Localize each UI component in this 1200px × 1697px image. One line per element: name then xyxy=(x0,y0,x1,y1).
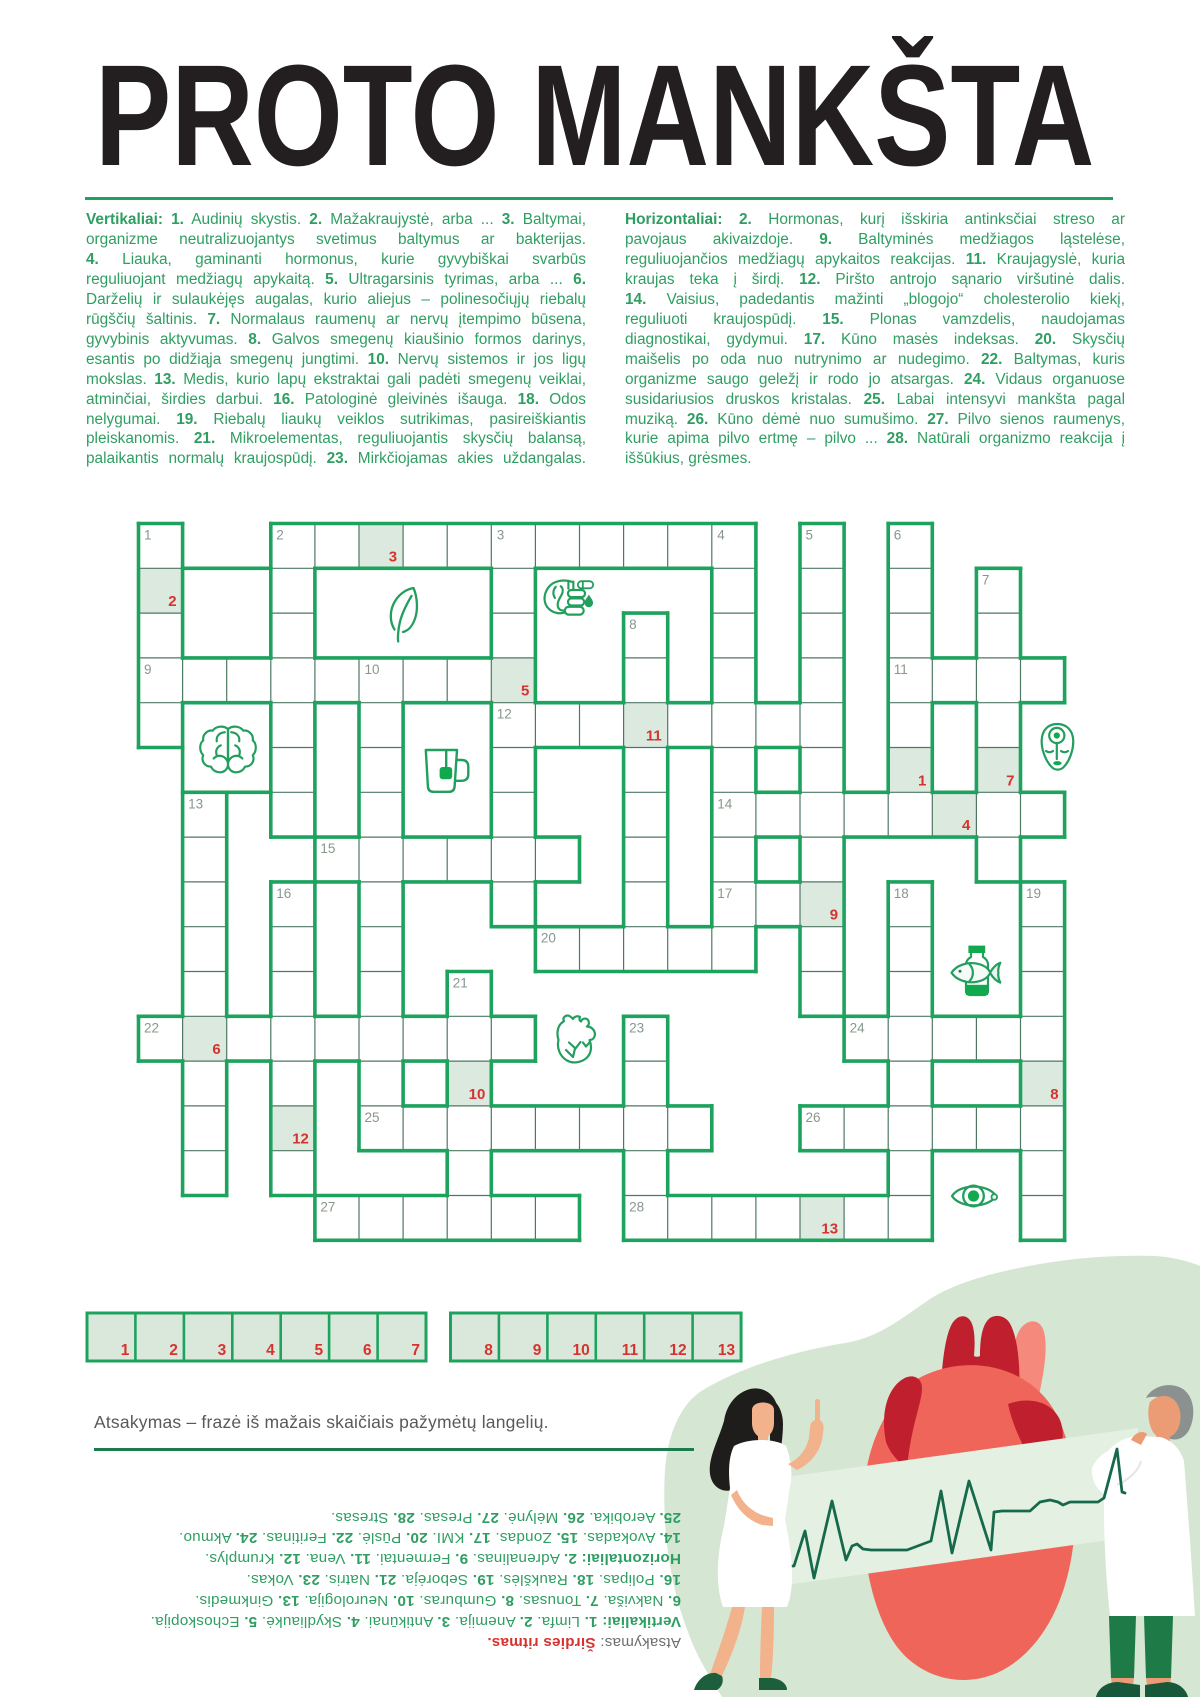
svg-text:6: 6 xyxy=(212,1041,220,1058)
svg-text:27: 27 xyxy=(320,1200,335,1215)
svg-text:5: 5 xyxy=(521,683,529,700)
svg-text:2: 2 xyxy=(169,1342,178,1359)
svg-text:15: 15 xyxy=(320,841,335,856)
svg-text:26: 26 xyxy=(806,1110,821,1125)
svg-text:10: 10 xyxy=(469,1086,486,1103)
svg-text:10: 10 xyxy=(365,662,380,677)
svg-text:12: 12 xyxy=(669,1342,686,1359)
svg-text:11: 11 xyxy=(622,1342,639,1359)
svg-text:7: 7 xyxy=(1006,772,1014,789)
svg-text:14: 14 xyxy=(717,796,733,811)
svg-text:7: 7 xyxy=(411,1342,420,1359)
svg-text:21: 21 xyxy=(453,976,468,991)
svg-text:8: 8 xyxy=(1050,1086,1058,1103)
svg-text:6: 6 xyxy=(363,1342,372,1359)
svg-text:11: 11 xyxy=(894,662,908,677)
svg-text:4: 4 xyxy=(717,528,725,543)
svg-text:24: 24 xyxy=(850,1020,866,1035)
svg-text:2: 2 xyxy=(168,593,176,610)
svg-text:11: 11 xyxy=(646,728,662,745)
svg-text:9: 9 xyxy=(533,1342,542,1359)
svg-text:6: 6 xyxy=(894,528,902,543)
svg-text:2: 2 xyxy=(276,528,284,543)
svg-text:4: 4 xyxy=(962,817,971,834)
svg-text:8: 8 xyxy=(484,1342,493,1359)
svg-text:8: 8 xyxy=(629,617,637,632)
svg-text:28: 28 xyxy=(629,1200,644,1215)
svg-text:17: 17 xyxy=(717,886,732,901)
svg-text:3: 3 xyxy=(389,548,397,565)
svg-text:23: 23 xyxy=(629,1020,644,1035)
svg-text:4: 4 xyxy=(266,1342,275,1359)
svg-text:20: 20 xyxy=(541,931,556,946)
svg-text:22: 22 xyxy=(144,1020,159,1035)
svg-text:13: 13 xyxy=(821,1220,838,1237)
svg-text:7: 7 xyxy=(982,572,990,587)
svg-text:12: 12 xyxy=(292,1131,309,1148)
svg-text:25: 25 xyxy=(365,1110,380,1125)
svg-text:5: 5 xyxy=(314,1342,323,1359)
svg-text:1: 1 xyxy=(121,1342,130,1359)
svg-text:3: 3 xyxy=(218,1342,227,1359)
svg-text:18: 18 xyxy=(894,886,909,901)
svg-text:10: 10 xyxy=(573,1342,590,1359)
svg-text:12: 12 xyxy=(497,707,512,722)
svg-text:9: 9 xyxy=(144,662,152,677)
svg-text:9: 9 xyxy=(830,907,838,924)
svg-text:3: 3 xyxy=(497,528,505,543)
svg-text:16: 16 xyxy=(276,886,291,901)
svg-text:19: 19 xyxy=(1026,886,1041,901)
svg-text:1: 1 xyxy=(918,772,926,789)
svg-text:13: 13 xyxy=(188,796,203,811)
svg-text:1: 1 xyxy=(144,528,152,543)
svg-text:5: 5 xyxy=(806,528,814,543)
svg-text:13: 13 xyxy=(718,1342,736,1359)
